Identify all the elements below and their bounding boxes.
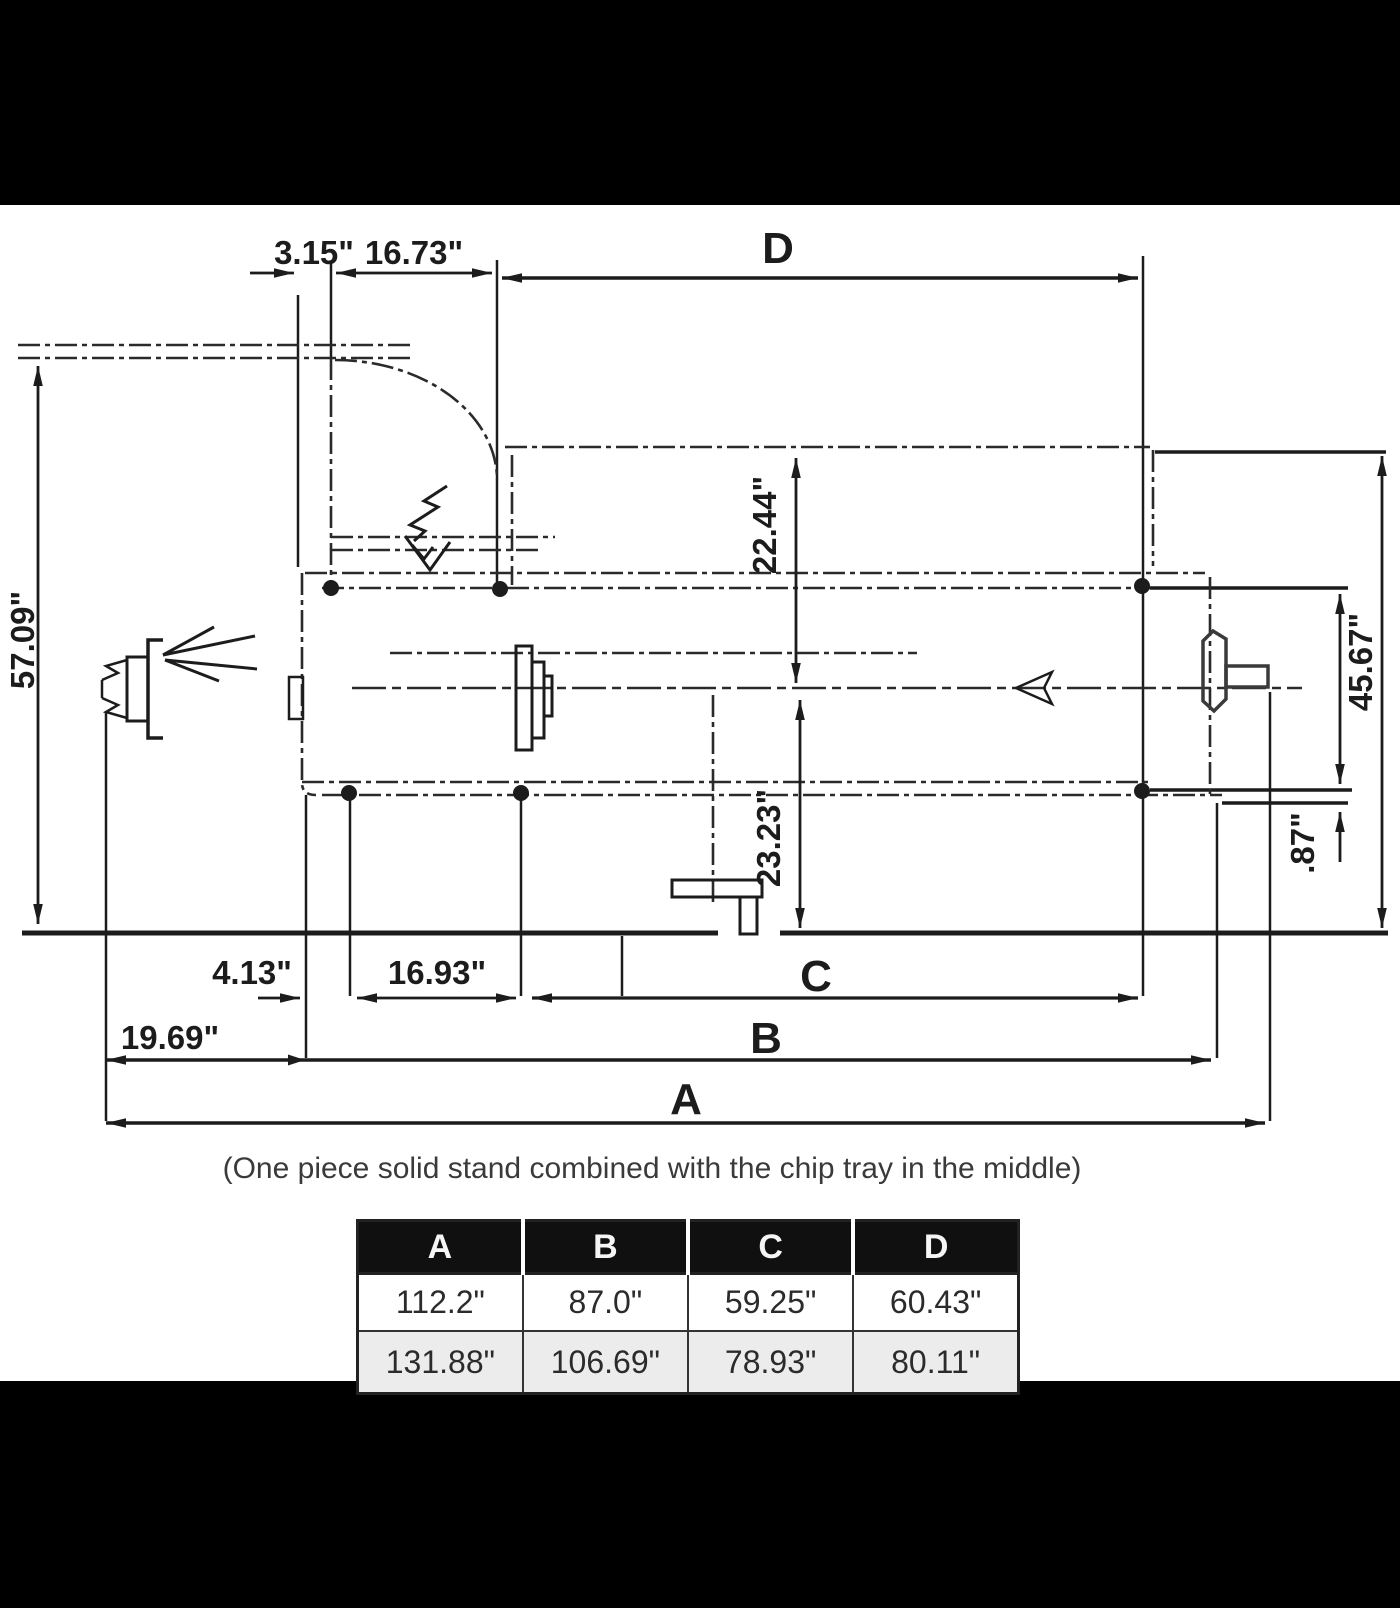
table-cell: 80.11" [853, 1331, 1018, 1394]
table-cell: 59.25" [688, 1274, 853, 1332]
tailstock-symbol [1203, 631, 1268, 711]
table-cell: 131.88" [358, 1331, 523, 1394]
chip-tray-leg-symbol [672, 880, 762, 934]
table-row: 112.2" 87.0" 59.25" 60.43" [358, 1274, 1019, 1332]
table-header-cell-b: B [523, 1221, 688, 1274]
table-header-cell-a: A [358, 1221, 523, 1274]
table-cell: 106.69" [523, 1331, 688, 1394]
dim-label-c: C [800, 952, 832, 1001]
door-swing-arc [335, 360, 497, 480]
dim-label-16-73: 16.73" [365, 234, 463, 271]
dim-label-3-15: 3.15" [274, 234, 354, 271]
table-header-row: A B C D [358, 1221, 1019, 1274]
scanned-page: 3.15" 16.73" D 57.09" 22.44" 23.23" 45.6… [0, 0, 1400, 1608]
dim-label-45-67: 45.67" [1342, 613, 1379, 711]
dim-label-d: D [762, 224, 794, 273]
dim-label-19-69: 19.69" [121, 1019, 219, 1056]
dimension-lines [38, 273, 1382, 1123]
dim-label-4-13: 4.13" [212, 954, 292, 991]
table-cell: 112.2" [358, 1274, 523, 1332]
machine-outline-phantom-lines [18, 345, 1222, 903]
junction-dots [323, 578, 1150, 801]
chuck-symbol [102, 640, 163, 738]
dimension-spec-table: A B C D 112.2" 87.0" 59.25" 60.43" 131.8… [356, 1219, 1020, 1395]
chuck-pointer-arrow-icon [163, 627, 257, 681]
table-header-cell-d: D [853, 1221, 1018, 1274]
dim-label-a: A [670, 1075, 702, 1124]
table-header-cell-c: C [688, 1221, 853, 1274]
dim-label-22-44: 22.44" [746, 476, 783, 574]
table-cell: 78.93" [688, 1331, 853, 1394]
chain-arrowhead-19-69 [288, 1055, 305, 1066]
dim-label-16-93: 16.93" [388, 954, 486, 991]
spindle-symbol [516, 646, 552, 750]
dim-label-0-87: .87" [1284, 812, 1321, 874]
table-cell: 60.43" [853, 1274, 1018, 1332]
dim-label-57-09: 57.09" [4, 591, 41, 689]
drawing-caption: (One piece solid stand combined with the… [10, 1152, 1294, 1194]
dim-label-23-23: 23.23" [750, 789, 787, 887]
table-row: 131.88" 106.69" 78.93" 80.11" [358, 1331, 1019, 1394]
table-cell: 87.0" [523, 1274, 688, 1332]
lightning-arrow-icon [405, 486, 450, 570]
dim-label-b: B [750, 1014, 782, 1063]
